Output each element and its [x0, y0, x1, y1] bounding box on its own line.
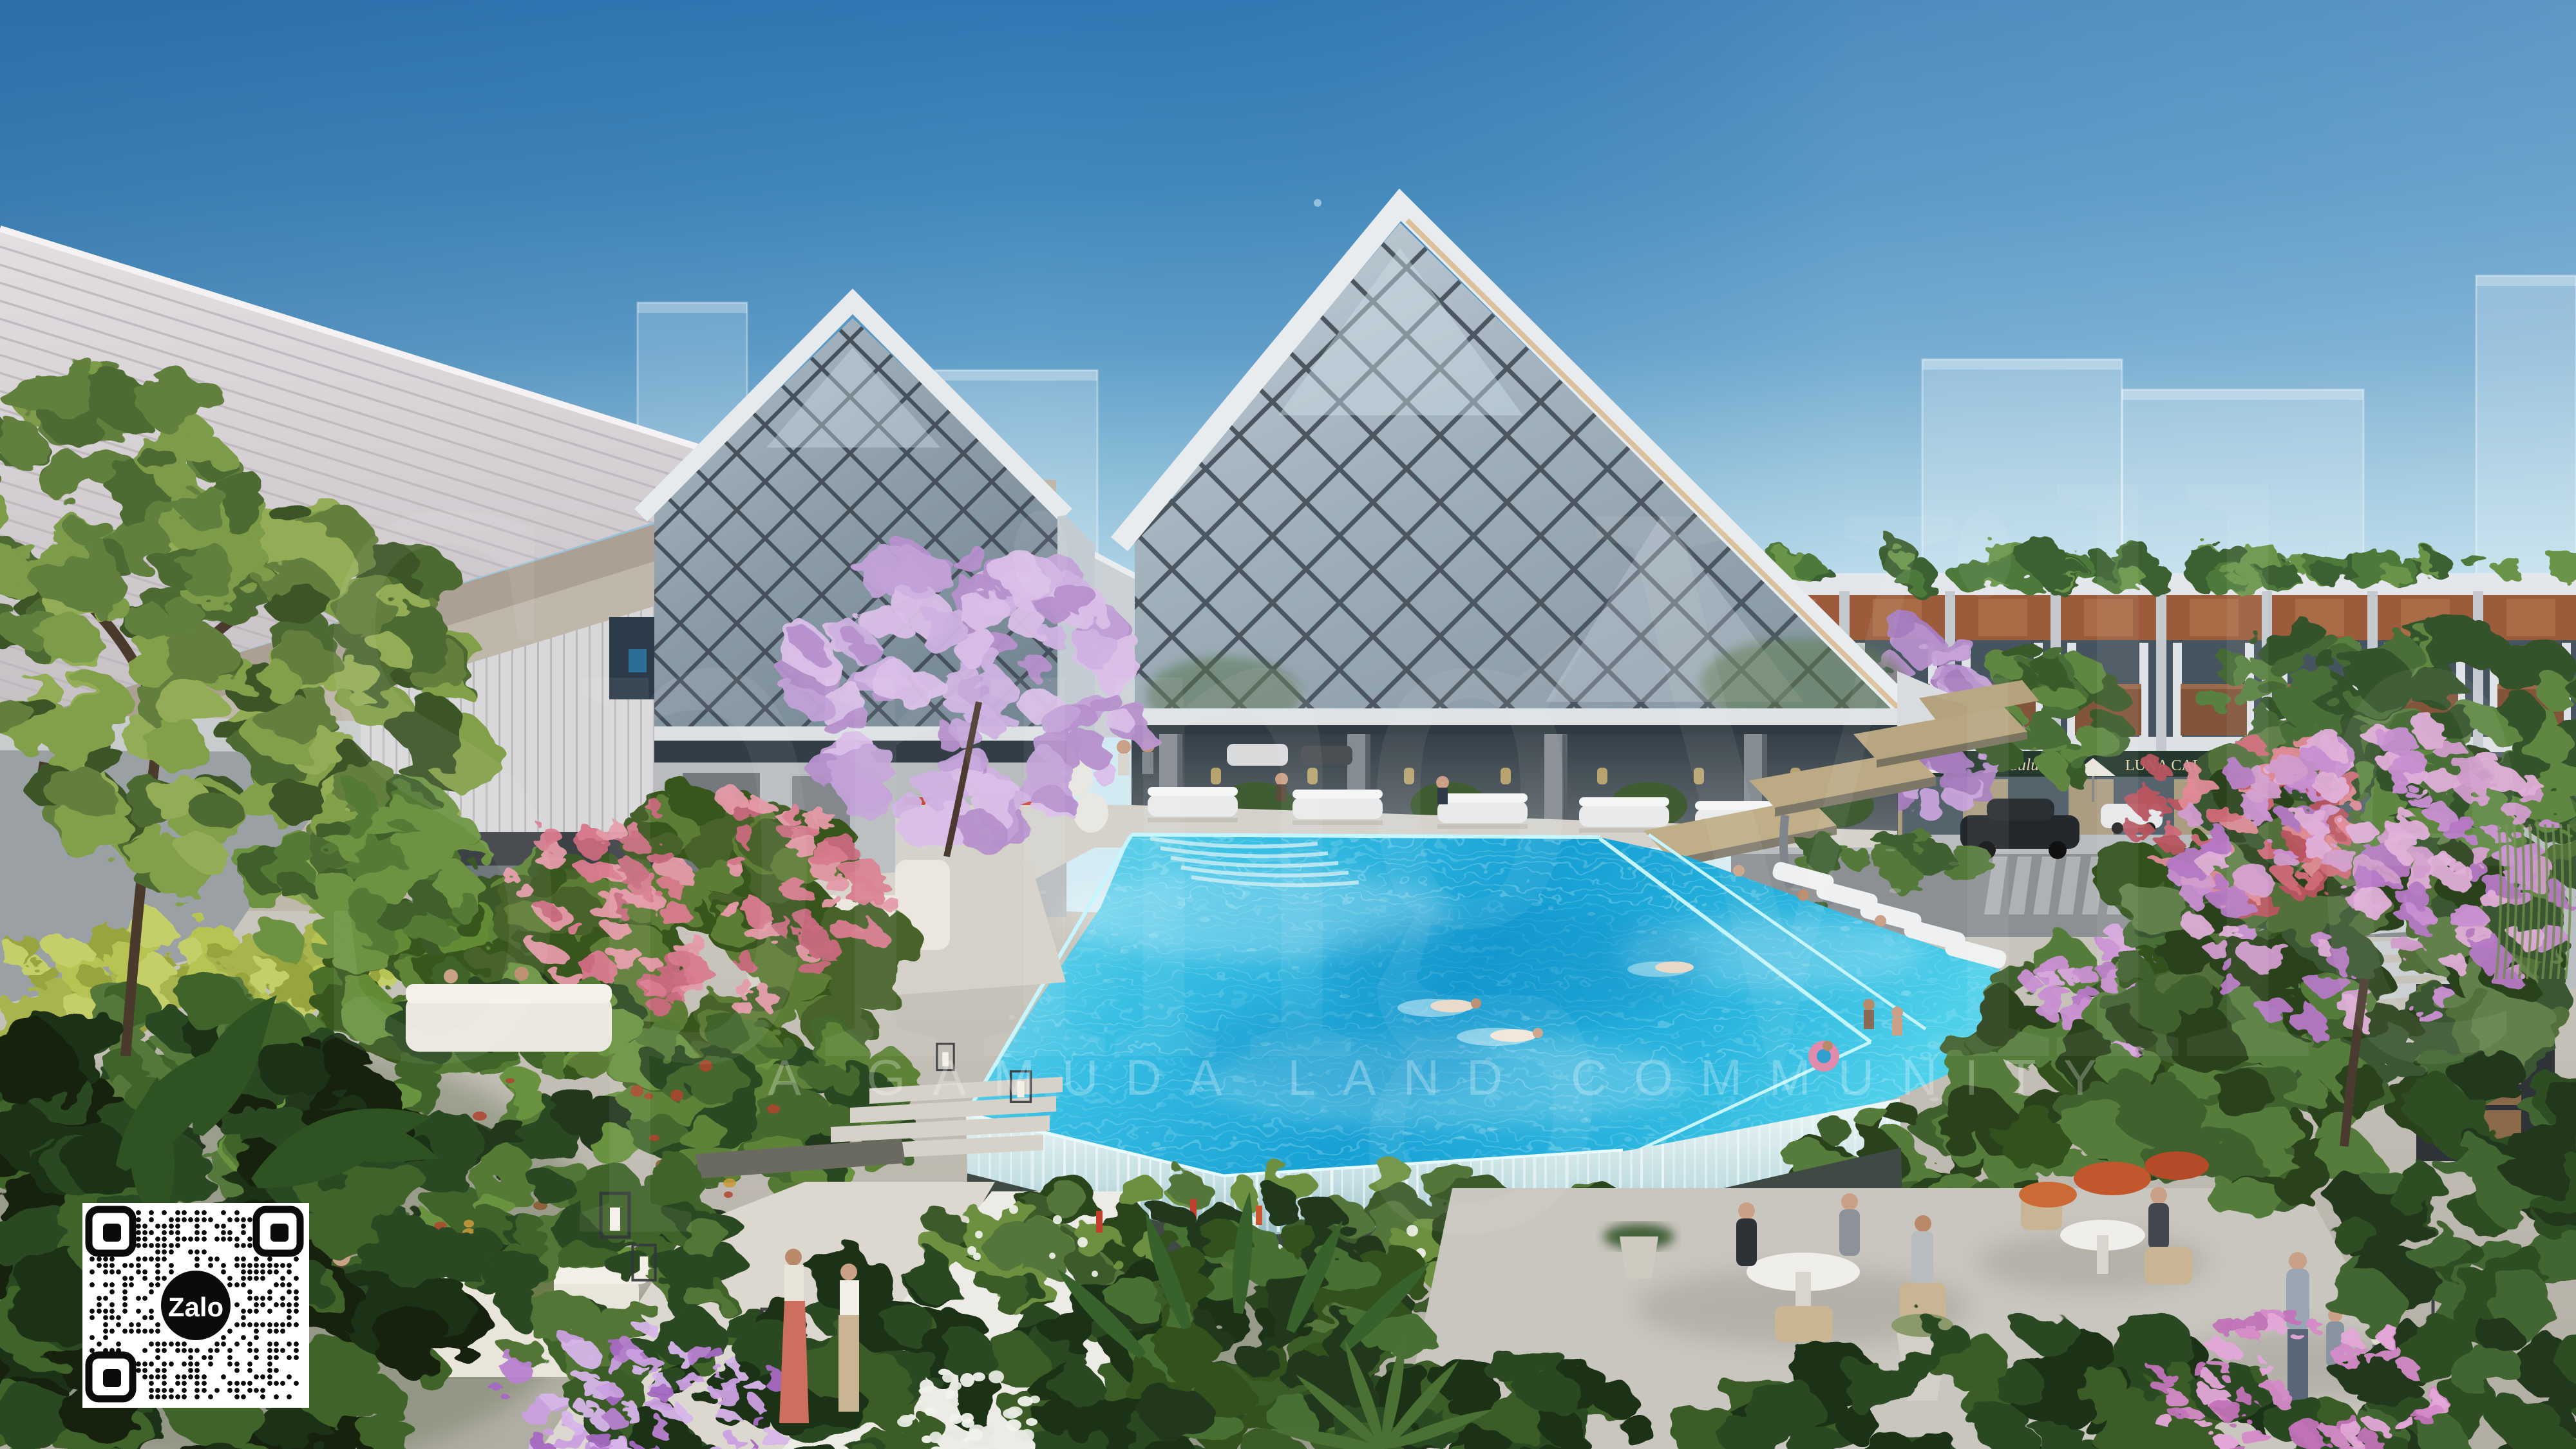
- svg-text:Zalo: Zalo: [168, 1292, 223, 1322]
- svg-text:A GAMUDA LAND COMMUNITY: A GAMUDA LAND COMMUNITY: [768, 1049, 2124, 1106]
